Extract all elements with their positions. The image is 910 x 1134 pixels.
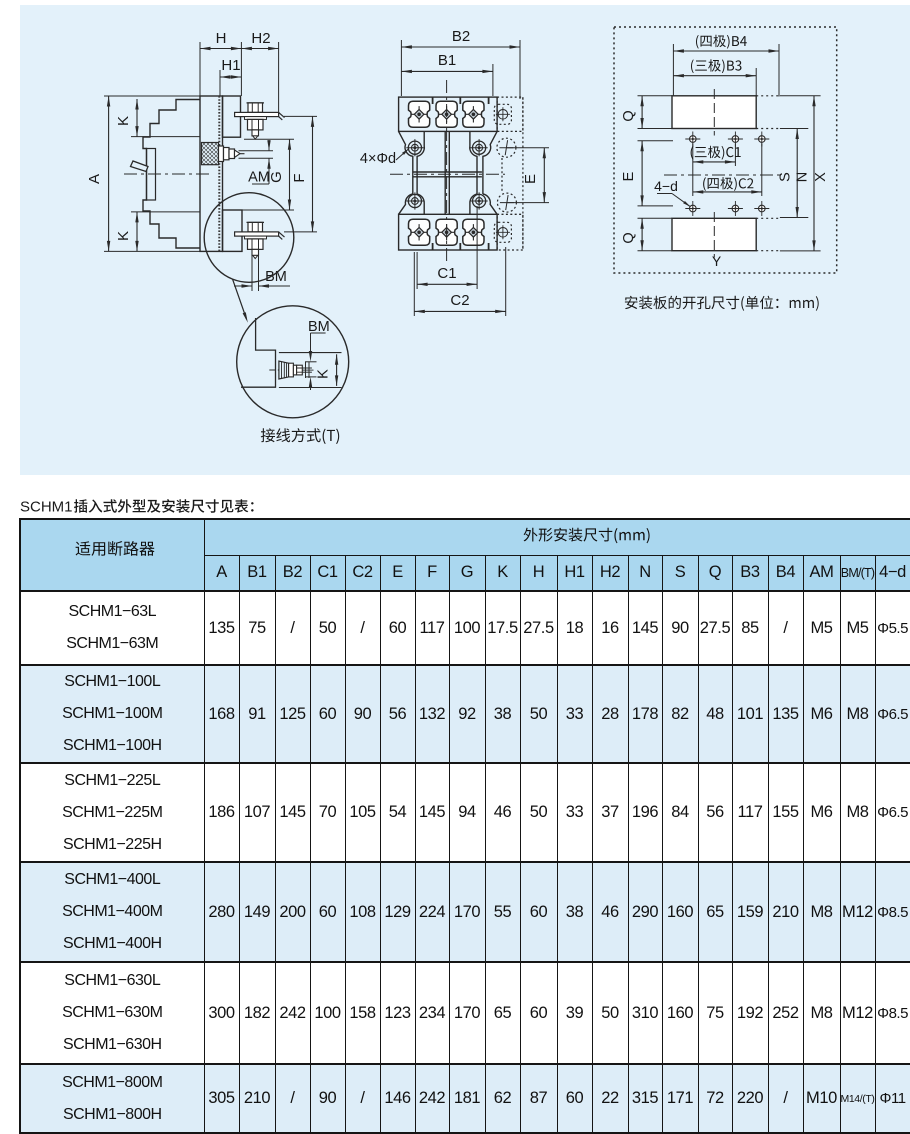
svg-text:E: E <box>621 171 637 181</box>
svg-text:K: K <box>115 231 132 241</box>
svg-text:C2: C2 <box>450 292 469 309</box>
svg-text:K: K <box>115 116 132 126</box>
svg-text:4×Φd: 4×Φd <box>360 151 396 167</box>
svg-text:H1: H1 <box>221 57 240 74</box>
svg-text:4−d: 4−d <box>654 178 678 194</box>
svg-text:G: G <box>268 171 285 183</box>
svg-text:B2: B2 <box>452 28 470 45</box>
svg-text:Q: Q <box>621 110 637 121</box>
svg-text:BM: BM <box>265 269 287 285</box>
svg-text:F: F <box>291 173 308 182</box>
svg-text:H2: H2 <box>251 30 270 47</box>
svg-text:AM: AM <box>248 170 270 186</box>
svg-text:B1: B1 <box>438 52 456 69</box>
svg-text:H: H <box>216 30 227 47</box>
svg-text:SCHM1: SCHM1 <box>20 499 73 516</box>
svg-text:BM: BM <box>308 319 330 335</box>
svg-text:N: N <box>795 172 811 182</box>
svg-text:K: K <box>316 369 332 379</box>
svg-text:X: X <box>813 172 829 182</box>
svg-text:Q: Q <box>621 232 637 243</box>
svg-text:C1: C1 <box>437 265 456 282</box>
svg-text:S: S <box>778 172 794 182</box>
svg-text:E: E <box>522 174 539 184</box>
svg-text:A: A <box>86 174 103 184</box>
svg-text:Y: Y <box>712 253 722 269</box>
